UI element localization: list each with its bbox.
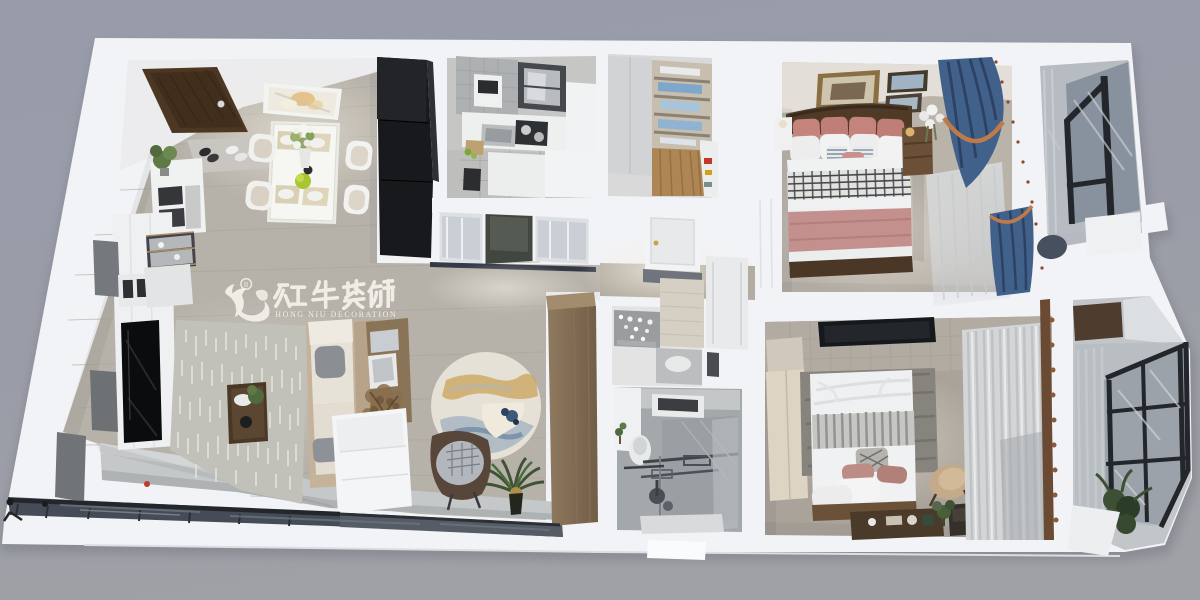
svg-text:R: R [244, 280, 249, 289]
svg-text:HONG NIU DECORATION: HONG NIU DECORATION [275, 310, 397, 319]
